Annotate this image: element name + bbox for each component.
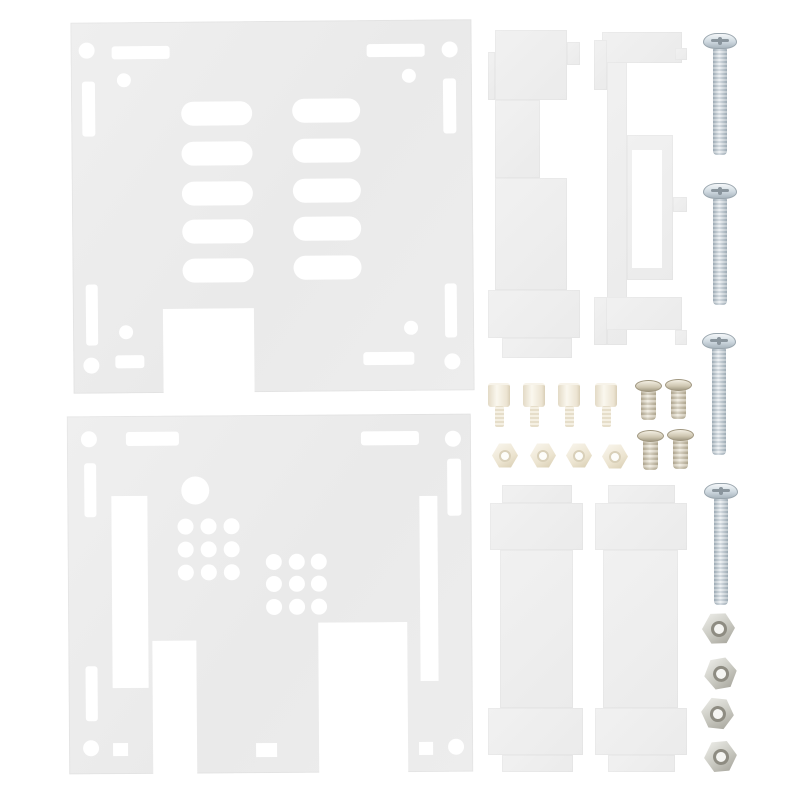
bottom-base-plate-slot: [84, 463, 96, 517]
top-cover-plate-hole: [79, 43, 95, 59]
bottom-base-plate-slot: [126, 432, 179, 446]
standoff-stud: [495, 406, 504, 427]
bottom-base-plate-slot: [86, 666, 98, 721]
nylon-nut: [602, 444, 628, 469]
bottom-base-plate-grid-hole: [288, 576, 304, 592]
side-panel-top-left: [495, 100, 540, 178]
bottom-base-plate-slot: [447, 459, 461, 516]
top-cover-plate-hole: [444, 353, 460, 369]
small-screw-head: [667, 429, 694, 441]
bottom-base-plate-slot: [419, 742, 433, 755]
standoff-body: [595, 383, 617, 407]
side-panel-bottom-left: [500, 550, 573, 708]
bottom-base-plate-slot: [361, 431, 419, 445]
small-screw-shank: [671, 389, 686, 419]
screw-shaft: [713, 47, 727, 155]
side-panel-bottom-right: [608, 755, 675, 772]
small-screw-head: [665, 379, 692, 391]
machine-screw: [703, 183, 739, 309]
top-cover-plate-slot: [292, 98, 360, 123]
machine-screw: [704, 483, 740, 609]
nylon-nut: [530, 443, 556, 468]
side-panel-bottom-right: [595, 503, 687, 550]
top-cover-plate-slot: [293, 255, 361, 280]
top-cover-plate-slot: [292, 138, 360, 163]
bottom-base-plate-slot: [256, 743, 277, 757]
top-cover-plate-slot: [182, 181, 253, 206]
hex-nut: [703, 740, 739, 774]
top-cover-plate-hole: [83, 358, 99, 374]
nut-hole: [709, 705, 727, 723]
machine-screw: [702, 333, 738, 459]
bottom-base-plate-grid-hole: [266, 576, 282, 592]
side-panel-top-right: [675, 330, 687, 345]
bottom-base-plate-grid-hole: [311, 598, 327, 614]
standoff-stud: [530, 406, 539, 427]
nut-hole: [711, 664, 730, 683]
nut-hole: [710, 620, 727, 637]
top-cover-plate-slot: [363, 352, 414, 365]
top-cover-plate-slot: [293, 178, 361, 203]
nylon-standoff: [488, 383, 510, 427]
top-cover-plate-slot: [86, 285, 99, 346]
side-panel-top-left: [488, 52, 495, 100]
hex-nut: [699, 696, 735, 730]
machine-screw: [703, 33, 739, 159]
top-cover-plate: [70, 19, 474, 393]
side-panel-top-right: [673, 197, 687, 212]
side-panel-top-left: [488, 290, 580, 338]
side-panel-bottom-right: [608, 485, 675, 503]
small-screw: [665, 379, 692, 421]
bottom-base-plate-hole: [83, 740, 99, 756]
bottom-base-plate-grid-hole: [223, 518, 239, 534]
bottom-base-plate-hole: [445, 431, 461, 447]
small-screw-head: [635, 380, 662, 392]
nylon-nut-hole: [499, 450, 511, 462]
top-cover-plate-slot: [182, 258, 253, 283]
bottom-base-plate-grid-hole: [311, 576, 327, 592]
standoff-body: [488, 383, 510, 407]
top-cover-plate-slot: [112, 46, 170, 60]
phillips-slot-icon: [719, 487, 723, 495]
small-screw: [667, 429, 694, 471]
hex-nut: [702, 655, 740, 691]
bottom-base-plate-grid-hole: [288, 553, 304, 569]
nylon-standoff: [558, 383, 580, 427]
hex-nut: [701, 612, 735, 644]
bottom-base-plate-hole: [448, 739, 464, 755]
small-screw-head: [637, 430, 664, 442]
bottom-base-plate-grid-hole: [200, 541, 216, 557]
nylon-nut-hole: [537, 450, 549, 462]
phillips-slot-icon: [718, 187, 722, 195]
nylon-standoff: [523, 383, 545, 427]
top-cover-plate-slot: [182, 219, 253, 244]
bottom-base-plate-grid-hole: [177, 541, 193, 557]
bottom-base-plate-grid-hole: [311, 553, 327, 569]
top-cover-plate-slot: [82, 82, 95, 137]
screw-shaft: [714, 497, 728, 605]
bottom-base-plate-grid-hole: [200, 564, 216, 580]
side-panel-bottom-left: [490, 503, 583, 550]
standoff-body: [523, 383, 545, 407]
top-cover-plate-slot: [115, 355, 144, 368]
small-screw: [637, 430, 664, 472]
small-screw-shank: [641, 390, 656, 420]
top-cover-plate-hole: [442, 41, 458, 57]
side-panel-top-left: [495, 178, 567, 290]
side-panel-bottom-left: [502, 755, 573, 772]
bottom-base-plate-grid-hole: [223, 541, 239, 557]
screw-shaft: [713, 197, 727, 305]
side-panel-bottom-right: [603, 550, 678, 708]
side-panel-bottom-left: [488, 708, 583, 755]
side-panel-top-left: [495, 30, 567, 100]
standoff-stud: [602, 406, 611, 427]
bottom-base-plate-slot: [152, 641, 197, 775]
phillips-slot-icon: [717, 337, 721, 345]
bottom-base-plate-slot: [111, 496, 148, 688]
bottom-base-plate-grid-hole: [223, 564, 239, 580]
top-cover-plate-slot: [181, 101, 252, 126]
side-panel-top-right: [602, 32, 682, 63]
side-panel-top-right: [594, 40, 607, 90]
side-panel-top-right: [675, 48, 687, 60]
nylon-nut-hole: [609, 451, 621, 463]
small-screw-shank: [643, 440, 658, 470]
small-screw-shank: [673, 439, 688, 469]
top-cover-plate-hole: [404, 321, 418, 335]
screw-shaft: [712, 347, 726, 455]
standoff-body: [558, 383, 580, 407]
top-cover-plate-slot: [445, 283, 457, 337]
nylon-standoff: [595, 383, 617, 427]
top-cover-plate-slot: [367, 44, 425, 58]
bottom-base-plate-grid-hole: [266, 553, 282, 569]
bottom-base-plate-grid-hole: [289, 598, 305, 614]
top-cover-plate-slot: [163, 308, 255, 395]
top-cover-plate-hole: [117, 73, 131, 87]
side-panel-top-right-cutout: [632, 150, 662, 268]
top-cover-plate-slot: [181, 141, 252, 166]
small-screw: [635, 380, 662, 422]
side-panel-top-right: [594, 297, 607, 345]
phillips-slot-icon: [718, 37, 722, 45]
bottom-base-plate-grid-hole: [200, 518, 216, 534]
bottom-base-plate-hole: [181, 476, 209, 504]
bottom-base-plate-grid-hole: [177, 518, 193, 534]
bottom-base-plate: [67, 414, 473, 775]
side-panel-bottom-left: [502, 485, 572, 503]
nylon-nut: [492, 443, 518, 468]
bottom-base-plate-grid-hole: [177, 564, 193, 580]
top-cover-plate-hole: [119, 325, 133, 339]
bottom-base-plate-hole: [81, 431, 97, 447]
nylon-nut-hole: [573, 450, 585, 462]
top-cover-plate-hole: [402, 69, 416, 83]
side-panel-top-right: [602, 297, 682, 330]
nut-hole: [712, 748, 729, 765]
side-panel-bottom-right: [595, 708, 687, 755]
top-cover-plate-slot: [293, 216, 361, 241]
standoff-stud: [565, 406, 574, 427]
top-cover-plate-slot: [443, 78, 456, 133]
nylon-nut: [566, 443, 592, 468]
bottom-base-plate-slot: [318, 622, 408, 774]
bottom-base-plate-slot: [113, 743, 128, 756]
side-panel-top-left: [567, 42, 580, 65]
bottom-base-plate-slot: [419, 496, 438, 681]
bottom-base-plate-grid-hole: [266, 598, 282, 614]
acrylic-case-kit-photo: [0, 0, 800, 800]
side-panel-top-left: [502, 338, 572, 358]
